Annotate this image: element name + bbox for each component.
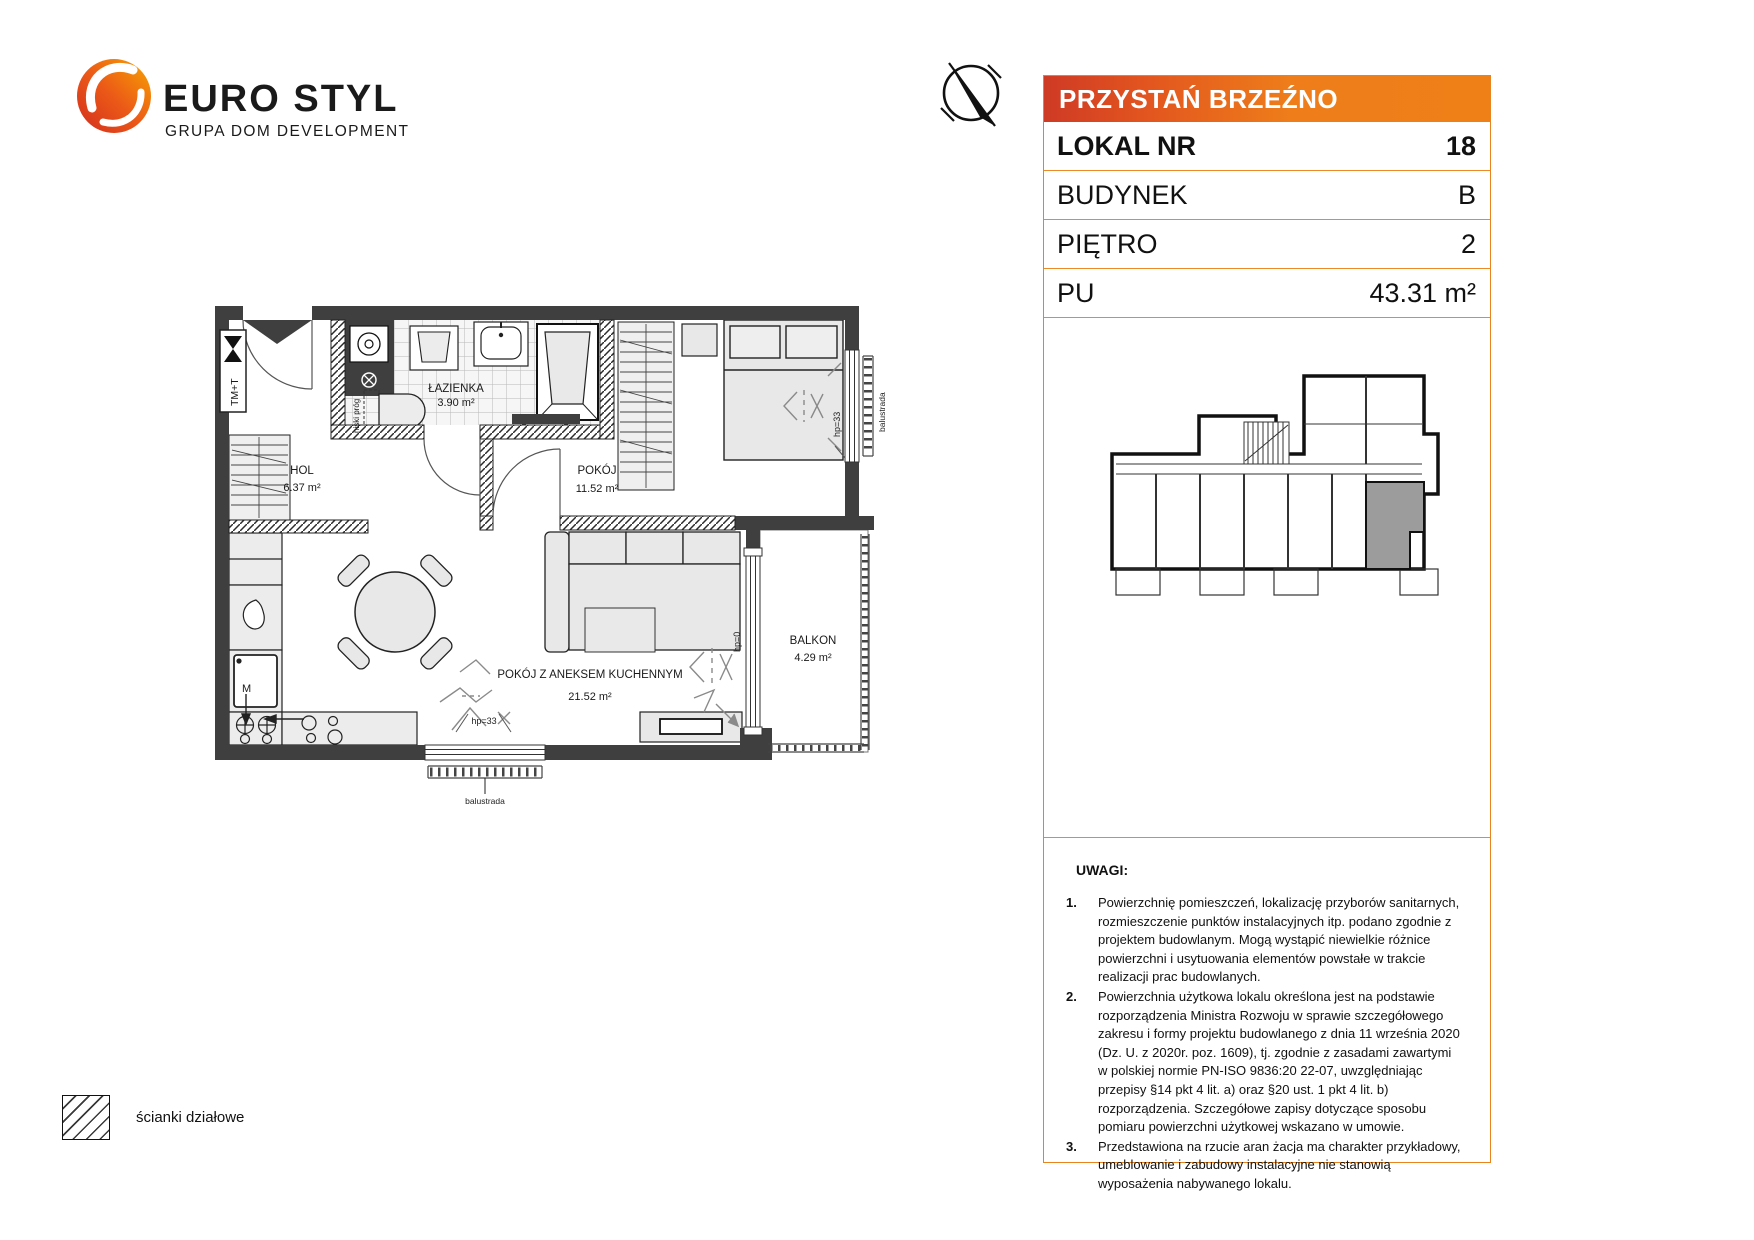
balustrade-bottom-window xyxy=(428,766,542,778)
hp33-bottom-label: hp=33 xyxy=(471,716,496,726)
info-label: PU xyxy=(1057,278,1095,309)
building-key-plan xyxy=(1102,326,1442,636)
low-threshold-label: niski próg xyxy=(352,399,361,433)
notes-section: UWAGI: 1. Powierzchnię pomieszczeń, loka… xyxy=(1044,838,1490,1194)
hp33-right-label: hp=33 xyxy=(832,412,842,437)
balustrade-bottom-label: balustrada xyxy=(465,796,505,805)
brand-logo: EURO STYL GRUPA DOM DEVELOPMENT xyxy=(70,48,430,148)
bedroom-wardrobe xyxy=(618,322,674,490)
balustrade-right-window xyxy=(863,356,873,456)
room-label-bedroom: POKÓJ xyxy=(578,464,617,477)
dining-table xyxy=(336,553,455,672)
meter-box: TM+T xyxy=(220,330,246,412)
washing-machine-niche xyxy=(345,320,394,396)
info-label: PIĘTRO xyxy=(1057,229,1158,260)
room-area-balcony: 4.29 m² xyxy=(794,652,832,664)
washbasin xyxy=(474,322,528,366)
appliance-m-label: M xyxy=(242,683,251,695)
tv-bench xyxy=(640,712,742,742)
project-name-header: PRZYSTAŃ BRZEŹNO xyxy=(1044,76,1490,122)
room-area-bedroom: 11.52 m² xyxy=(576,483,619,495)
building-key-plan-cell xyxy=(1044,318,1490,838)
info-value: B xyxy=(1458,180,1476,211)
note-text: Powierzchnia użytkowa lokalu określona j… xyxy=(1098,988,1464,1137)
info-row-pietro: PIĘTRO 2 xyxy=(1044,220,1490,269)
tmt-label: TM+T xyxy=(229,378,241,406)
info-row-pu: PU 43.31 m² xyxy=(1044,269,1490,318)
info-value: 18 xyxy=(1446,131,1476,162)
room-area-hall: 6.37 m² xyxy=(283,482,321,494)
note-item: 3. Przedstawiona na rzucie aran żacja ma… xyxy=(1066,1138,1464,1194)
brand-tagline: GRUPA DOM DEVELOPMENT xyxy=(165,123,409,140)
balustrade-right-label: balustrada xyxy=(877,392,887,432)
room-label-bathroom: ŁAZIENKA xyxy=(428,383,484,395)
entrance-marker xyxy=(243,320,312,344)
stairwell xyxy=(1244,422,1289,464)
note-text: Powierzchnię pomieszczeń, lokalizację pr… xyxy=(1098,894,1464,987)
note-item: 2. Powierzchnia użytkowa lokalu określon… xyxy=(1066,988,1464,1137)
mini-balconies xyxy=(1116,569,1438,595)
note-number: 1. xyxy=(1066,894,1098,987)
info-label: LOKAL NR xyxy=(1057,131,1196,162)
partition-wall-hatch-icon xyxy=(62,1095,110,1140)
info-row-budynek: BUDYNEK B xyxy=(1044,171,1490,220)
hp0-label: hp=0 xyxy=(732,632,742,652)
info-value: 2 xyxy=(1461,229,1476,260)
notes-title: UWAGI: xyxy=(1076,862,1464,878)
unit-info-panel: PRZYSTAŃ BRZEŹNO LOKAL NR 18 BUDYNEK B P… xyxy=(1043,75,1491,1163)
room-label-balcony: BALKON xyxy=(790,635,837,647)
room-area-bathroom: 3.90 m² xyxy=(437,397,475,409)
nightstand xyxy=(682,324,717,356)
coffee-table xyxy=(585,608,655,652)
legend: ścianki działowe xyxy=(62,1095,244,1140)
room-area-living: 21.52 m² xyxy=(568,691,612,703)
note-number: 3. xyxy=(1066,1138,1098,1194)
shower-cabin xyxy=(537,324,598,420)
hallway-wardrobe xyxy=(229,435,290,520)
apartment-floor-plan: M xyxy=(212,300,888,805)
note-text: Przedstawiona na rzucie aran żacja ma ch… xyxy=(1098,1138,1464,1194)
legend-label: ścianki działowe xyxy=(136,1109,244,1126)
bathroom-cabinet xyxy=(410,326,458,370)
info-label: BUDYNEK xyxy=(1057,180,1188,211)
room-label-living: POKÓJ Z ANEKSEM KUCHENNYM xyxy=(497,668,682,681)
info-value: 43.31 m² xyxy=(1369,278,1476,309)
note-item: 1. Powierzchnię pomieszczeń, lokalizację… xyxy=(1066,894,1464,987)
room-label-hall: HOL xyxy=(290,465,314,477)
flame-logo-icon xyxy=(77,59,151,133)
project-name: PRZYSTAŃ BRZEŹNO xyxy=(1059,84,1338,114)
floorplan-sheet: EURO STYL GRUPA DOM DEVELOPMENT PRZYSTAŃ… xyxy=(0,0,1754,1240)
bed xyxy=(724,320,843,460)
north-arrow-icon xyxy=(936,56,1010,142)
brand-name: EURO STYL xyxy=(163,78,398,120)
note-number: 2. xyxy=(1066,988,1098,1137)
info-row-lokal: LOKAL NR 18 xyxy=(1044,122,1490,171)
